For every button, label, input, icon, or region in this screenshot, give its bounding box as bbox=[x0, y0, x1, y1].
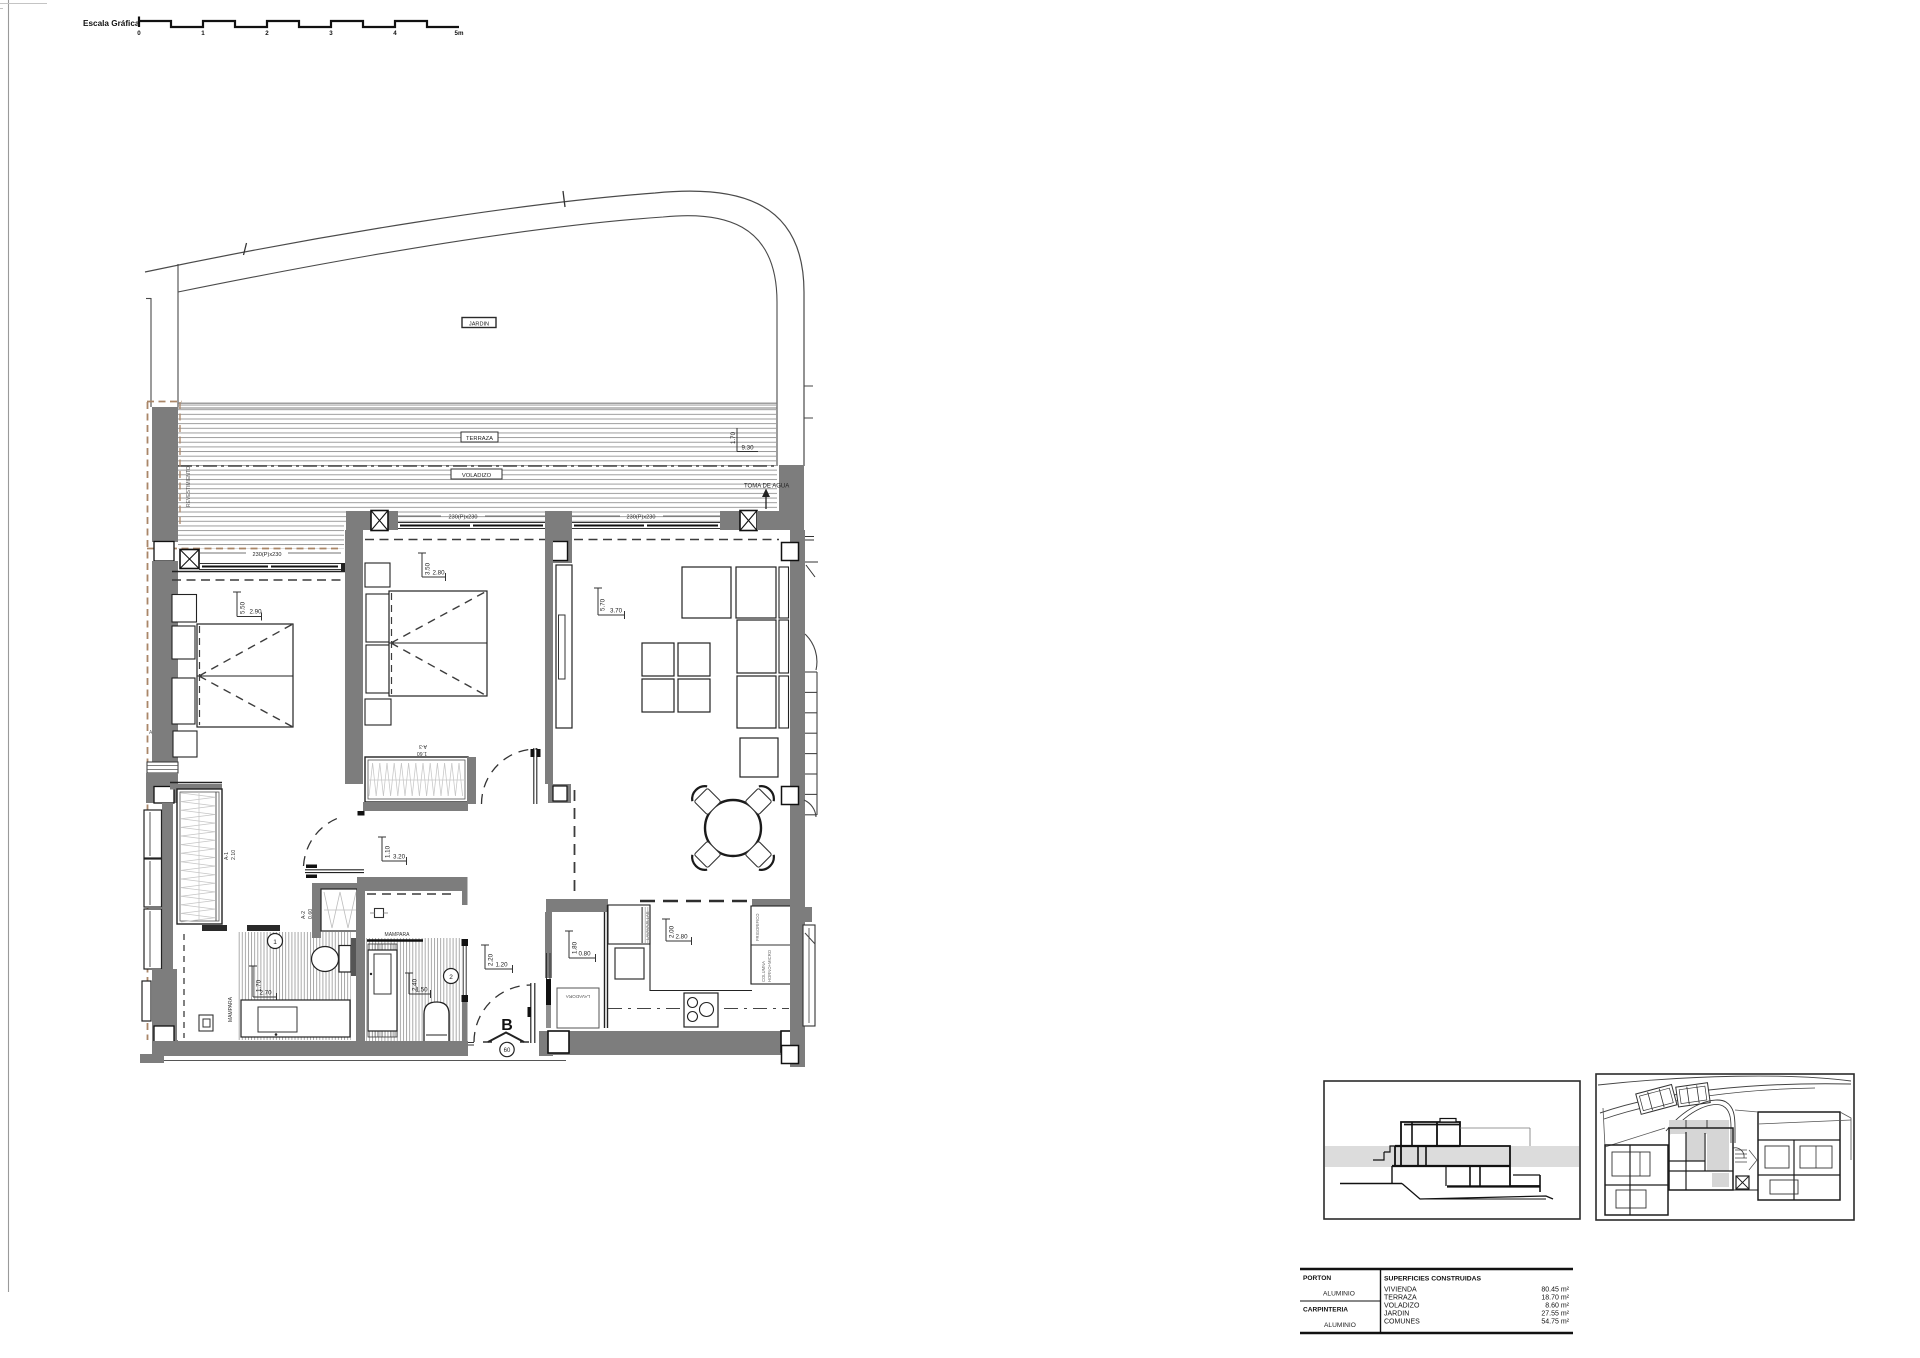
svg-text:1.10: 1.10 bbox=[385, 845, 392, 858]
svg-text:COLUMNA: COLUMNA bbox=[761, 961, 766, 982]
svg-text:0.60: 0.60 bbox=[308, 909, 314, 919]
svg-text:JARDIN: JARDIN bbox=[469, 321, 489, 327]
svg-text:0: 0 bbox=[137, 30, 141, 37]
svg-text:230(P)x230: 230(P)x230 bbox=[627, 515, 656, 521]
svg-text:2.20: 2.20 bbox=[488, 953, 495, 966]
svg-text:A-2: A-2 bbox=[301, 911, 307, 919]
svg-text:MAMPARA: MAMPARA bbox=[228, 996, 234, 1022]
svg-text:27.55 m²: 27.55 m² bbox=[1541, 1311, 1569, 1318]
svg-text:2.10: 2.10 bbox=[231, 850, 237, 860]
svg-text:FRIGORIFICO: FRIGORIFICO bbox=[755, 913, 760, 941]
svg-text:1.80: 1.80 bbox=[572, 941, 579, 954]
svg-text:LAVADORA: LAVADORA bbox=[565, 994, 590, 999]
svg-text:5.70: 5.70 bbox=[600, 598, 607, 611]
svg-text:CARPINTERIA: CARPINTERIA bbox=[1303, 1307, 1348, 1314]
svg-text:3.70: 3.70 bbox=[610, 608, 623, 615]
svg-text:B: B bbox=[501, 1017, 513, 1034]
svg-text:VIVIENDA: VIVIENDA bbox=[1384, 1287, 1417, 1294]
svg-text:54.75 m²: 54.75 m² bbox=[1541, 1319, 1569, 1326]
svg-text:ALUMINIO: ALUMINIO bbox=[1323, 1291, 1355, 1298]
svg-text:TERRAZA: TERRAZA bbox=[1384, 1295, 1417, 1302]
svg-text:A-3: A-3 bbox=[419, 743, 427, 749]
svg-text:2.90: 2.90 bbox=[250, 609, 263, 616]
svg-text:HORNO+MICRO: HORNO+MICRO bbox=[767, 949, 772, 982]
svg-text:5m: 5m bbox=[455, 30, 464, 37]
svg-text:3.50: 3.50 bbox=[425, 562, 432, 575]
svg-text:230(P)x230: 230(P)x230 bbox=[253, 552, 282, 558]
svg-text:0.80: 0.80 bbox=[579, 951, 592, 958]
svg-text:1.50: 1.50 bbox=[416, 987, 429, 994]
svg-text:9.30: 9.30 bbox=[742, 445, 755, 452]
svg-text:1: 1 bbox=[201, 30, 205, 37]
svg-text:TERRAZA: TERRAZA bbox=[466, 436, 493, 442]
svg-text:REVESTIMIENTO: REVESTIMIENTO bbox=[186, 466, 192, 507]
svg-text:VOLADIZO: VOLADIZO bbox=[462, 473, 492, 479]
svg-text:Escala Gráfica: Escala Gráfica bbox=[83, 19, 140, 28]
svg-text:PORTON: PORTON bbox=[1303, 1275, 1331, 1282]
svg-text:TOMA DE AGUA: TOMA DE AGUA bbox=[744, 484, 789, 490]
svg-text:SUPERFICIES CONSTRUIDAS: SUPERFICIES CONSTRUIDAS bbox=[1384, 1276, 1482, 1283]
svg-text:COMUNES: COMUNES bbox=[1384, 1319, 1420, 1326]
svg-text:3.20: 3.20 bbox=[393, 854, 406, 861]
svg-text:1.70: 1.70 bbox=[730, 431, 737, 444]
svg-text:2.70: 2.70 bbox=[260, 990, 273, 997]
svg-text:2.00: 2.00 bbox=[669, 925, 676, 938]
svg-text:2: 2 bbox=[449, 974, 453, 981]
svg-text:3: 3 bbox=[329, 30, 333, 37]
svg-text:JARDIN: JARDIN bbox=[1384, 1311, 1409, 1318]
svg-text:18.70 m²: 18.70 m² bbox=[1541, 1295, 1569, 1302]
svg-text:ALUMINIO: ALUMINIO bbox=[1324, 1322, 1356, 1329]
svg-text:1.20: 1.20 bbox=[496, 962, 509, 969]
svg-text:2.80: 2.80 bbox=[433, 570, 446, 577]
svg-text:4: 4 bbox=[393, 30, 397, 37]
svg-text:5.50: 5.50 bbox=[240, 601, 247, 614]
svg-text:80.45 m²: 80.45 m² bbox=[1541, 1287, 1569, 1294]
svg-text:230(P)x230: 230(P)x230 bbox=[449, 515, 478, 521]
svg-text:MAMPARA: MAMPARA bbox=[385, 932, 411, 938]
svg-text:8.60 m²: 8.60 m² bbox=[1545, 1303, 1569, 1310]
svg-text:VOLADIZO: VOLADIZO bbox=[1384, 1303, 1420, 1310]
svg-text:2.80: 2.80 bbox=[676, 934, 689, 941]
svg-text:LAVAVAJILLAS: LAVAVAJILLAS bbox=[645, 911, 650, 940]
svg-text:1: 1 bbox=[273, 939, 277, 946]
svg-text:2: 2 bbox=[265, 30, 269, 37]
svg-text:1.60: 1.60 bbox=[417, 750, 427, 756]
svg-text:60: 60 bbox=[504, 1048, 511, 1054]
svg-text:A-1: A-1 bbox=[224, 852, 230, 860]
